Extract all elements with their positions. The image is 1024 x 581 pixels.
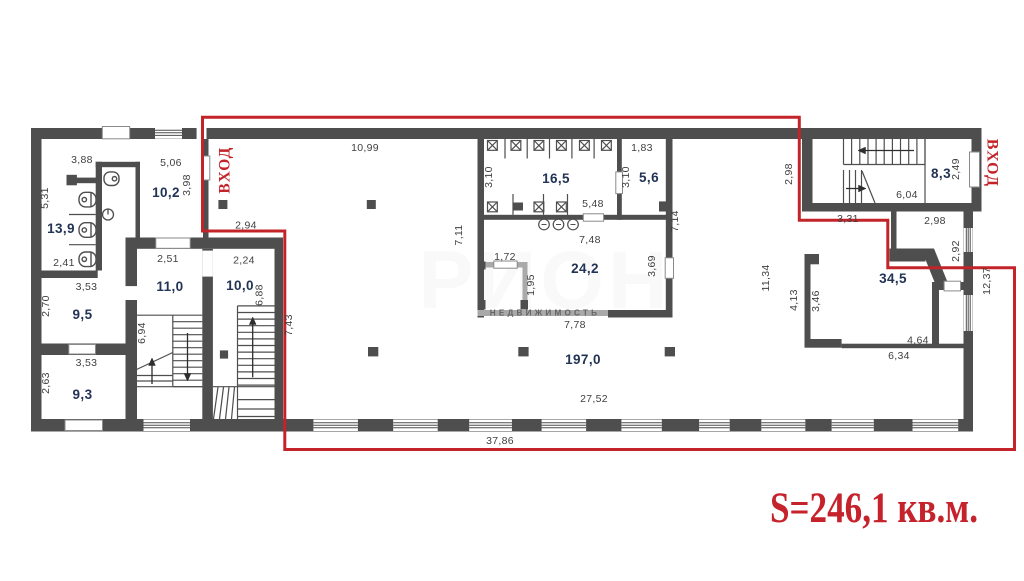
svg-text:10,2: 10,2	[152, 185, 180, 200]
svg-text:4,64: 4,64	[907, 335, 929, 347]
svg-text:1,95: 1,95	[525, 274, 537, 296]
svg-text:16,5: 16,5	[542, 171, 570, 186]
svg-text:7,43: 7,43	[283, 314, 295, 336]
svg-text:34,5: 34,5	[879, 271, 907, 286]
svg-text:3,53: 3,53	[76, 281, 98, 293]
svg-text:11,0: 11,0	[156, 279, 183, 294]
svg-text:5,6: 5,6	[639, 170, 659, 185]
svg-text:2,98: 2,98	[783, 163, 795, 185]
svg-text:7,78: 7,78	[564, 319, 586, 331]
svg-text:3,98: 3,98	[181, 174, 193, 196]
svg-text:2,41: 2,41	[53, 257, 75, 269]
svg-text:ВХОД: ВХОД	[217, 146, 234, 193]
svg-text:197,0: 197,0	[565, 352, 601, 367]
svg-text:10,99: 10,99	[351, 142, 379, 154]
svg-text:3,31: 3,31	[837, 213, 859, 225]
svg-text:ВХОД: ВХОД	[983, 139, 1000, 187]
svg-text:2,92: 2,92	[950, 240, 962, 262]
svg-text:3,69: 3,69	[646, 255, 658, 277]
svg-text:9,5: 9,5	[73, 307, 93, 322]
svg-text:3,10: 3,10	[620, 166, 632, 188]
svg-text:2,63: 2,63	[40, 372, 52, 394]
svg-text:3,53: 3,53	[76, 357, 98, 369]
svg-text:3,10: 3,10	[483, 166, 495, 188]
svg-text:6,04: 6,04	[896, 189, 918, 201]
svg-text:2,51: 2,51	[157, 253, 179, 265]
svg-text:24,2: 24,2	[571, 261, 599, 276]
svg-text:2,49: 2,49	[950, 158, 962, 180]
svg-text:9,3: 9,3	[73, 387, 93, 402]
svg-text:7,48: 7,48	[579, 234, 601, 246]
svg-text:10,0: 10,0	[226, 278, 254, 293]
svg-text:6,88: 6,88	[254, 284, 266, 306]
svg-text:3,46: 3,46	[810, 290, 822, 312]
svg-text:2,70: 2,70	[40, 295, 52, 317]
svg-text:2,94: 2,94	[235, 220, 257, 232]
svg-text:6,94: 6,94	[136, 322, 148, 344]
svg-text:5,48: 5,48	[582, 198, 604, 210]
svg-text:37,86: 37,86	[486, 435, 514, 447]
svg-text:12,37: 12,37	[981, 267, 993, 295]
svg-text:6,34: 6,34	[888, 350, 910, 362]
svg-text:НЕДВИЖИМОСТЬ: НЕДВИЖИМОСТЬ	[490, 309, 600, 318]
svg-text:2,24: 2,24	[233, 255, 255, 267]
svg-text:5,31: 5,31	[39, 187, 51, 209]
svg-text:13,9: 13,9	[47, 221, 75, 236]
svg-text:5,06: 5,06	[160, 157, 182, 169]
svg-text:2,98: 2,98	[924, 215, 946, 227]
svg-text:4,13: 4,13	[788, 289, 800, 311]
svg-text:1,83: 1,83	[631, 142, 653, 154]
svg-text:7,11: 7,11	[453, 225, 465, 246]
svg-text:3,88: 3,88	[71, 154, 93, 166]
svg-text:8,3: 8,3	[931, 166, 951, 181]
svg-text:27,52: 27,52	[580, 393, 608, 405]
svg-text:11,34: 11,34	[760, 265, 772, 292]
svg-text:1,72: 1,72	[494, 251, 516, 263]
svg-text:S=246,1 кв.м.: S=246,1 кв.м.	[770, 485, 978, 532]
svg-text:7,14: 7,14	[669, 210, 681, 232]
